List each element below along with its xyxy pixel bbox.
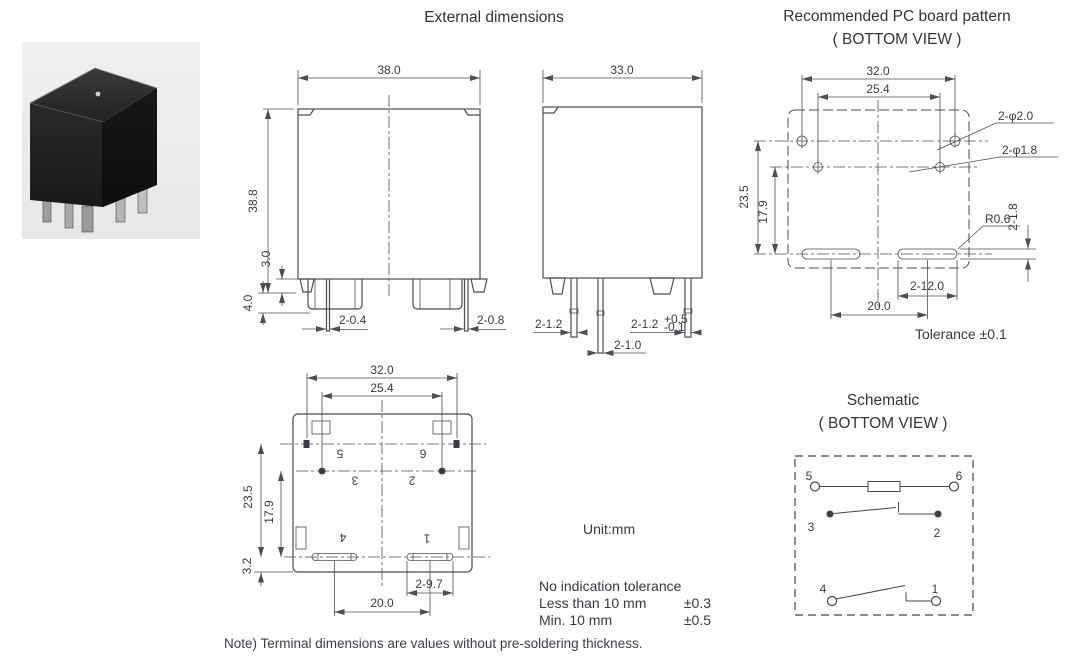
schematic-title-line2: ( BOTTOM VIEW ) xyxy=(743,412,1023,435)
side-label-pin-left: 2-1.2 xyxy=(535,317,563,331)
pcb-pattern-title: Recommended PC board pattern ( BOTTOM VI… xyxy=(755,5,1039,51)
bottom-pin5-label: 5 xyxy=(336,447,343,461)
side-label-pin-right: 2-1.2 xyxy=(631,317,659,331)
tolerance-note-title: No indication tolerance xyxy=(539,578,711,595)
bottom-dim-h-outer: 23.5 xyxy=(241,485,255,509)
front-view-drawing: 38.0 38.8 3.0 4.0 2-0.4 2-0.8 xyxy=(240,60,520,350)
relay-photo xyxy=(22,42,200,239)
pcb-pattern-title-line2: ( BOTTOM VIEW ) xyxy=(755,28,1039,51)
bottom-dim-h-inner: 17.9 xyxy=(262,500,276,524)
pcb-dim-h-inner: 17.9 xyxy=(756,200,770,224)
front-label-pin-wide: 2-0.8 xyxy=(477,313,505,327)
bottom-dim-pitch: 20.0 xyxy=(370,596,394,610)
tolerance-note-block: No indication tolerance Less than 10 mm … xyxy=(539,578,711,629)
bottom-pin1-label: 1 xyxy=(423,532,430,546)
datasheet-page: External dimensions Recommended PC board… xyxy=(0,0,1067,660)
pcb-pattern-drawing: 32.0 25.4 2-φ2.0 2-φ1.8 23.5 17.9 R0.6 2… xyxy=(740,60,1067,360)
schematic-pin4-label: 4 xyxy=(820,582,827,596)
schematic-contact-no xyxy=(828,586,941,606)
pcb-dim-w-inner: 25.4 xyxy=(866,82,890,96)
bottom-view-drawing: 5 6 3 2 4 1 32.0 25.4 23.5 17.9 3.2 2-9.… xyxy=(240,350,540,640)
schematic-pin3-label: 3 xyxy=(808,520,815,534)
bottom-pin2-label: 2 xyxy=(408,474,415,488)
pcb-dim-w-outer: 32.0 xyxy=(866,64,890,78)
footnote: Note) Terminal dimensions are values wit… xyxy=(224,636,642,651)
pcb-label-hole-large: 2-φ2.0 xyxy=(998,109,1033,123)
front-dim-standoff: 3.0 xyxy=(259,250,273,267)
front-terminals xyxy=(300,279,487,331)
bottom-pin3-label: 3 xyxy=(351,474,358,488)
tolerance-note-row1: Less than 10 mm ±0.3 xyxy=(539,595,711,612)
schematic-pin6-label: 6 xyxy=(956,469,963,483)
side-dim-width: 33.0 xyxy=(610,63,634,77)
schematic-coil xyxy=(811,482,959,492)
schematic-pin2-label: 2 xyxy=(934,526,941,540)
pcb-pattern-title-line1: Recommended PC board pattern xyxy=(755,5,1039,28)
front-dim-terminal: 4.0 xyxy=(241,294,255,311)
side-view-drawing: 33.0 2-1.2 2-1.2 +0.5 -0.1 2-1.0 xyxy=(530,60,720,370)
bottom-dim-w-inner: 25.4 xyxy=(370,381,394,395)
front-dim-width: 38.0 xyxy=(377,63,401,77)
tolerance-row1-value: ±0.3 xyxy=(684,595,711,612)
side-label-pin-right-sub: -0.1 xyxy=(664,320,685,334)
pcb-dim-pitch: 20.0 xyxy=(867,299,891,313)
tolerance-row1-label: Less than 10 mm xyxy=(539,595,646,612)
schematic-drawing: 5 6 3 2 4 1 xyxy=(790,440,990,630)
schematic-title: Schematic ( BOTTOM VIEW ) xyxy=(743,389,1023,435)
schematic-pin1-label: 1 xyxy=(932,582,939,596)
bottom-pin4-label: 4 xyxy=(339,531,346,545)
relay-body xyxy=(30,68,157,207)
bottom-dim-w-outer: 32.0 xyxy=(370,363,394,377)
tolerance-note-row2: Min. 10 mm ±0.5 xyxy=(539,612,711,629)
schematic-contact-nc xyxy=(827,502,942,518)
schematic-title-line1: Schematic xyxy=(743,389,1023,412)
pcb-tolerance: Tolerance ±0.1 xyxy=(915,326,1007,342)
front-dim-height: 38.8 xyxy=(246,189,260,213)
pcb-label-slot-width: 2-1.8 xyxy=(1006,203,1020,231)
tolerance-row2-value: ±0.5 xyxy=(684,612,711,629)
external-dimensions-title: External dimensions xyxy=(354,6,634,29)
pcb-dim-h-outer: 23.5 xyxy=(737,185,751,209)
bottom-dim-offset: 3.2 xyxy=(240,557,254,574)
unit-label: Unit:mm xyxy=(583,521,635,537)
tolerance-row2-label: Min. 10 mm xyxy=(539,612,612,629)
front-label-pin-thin: 2-0.4 xyxy=(339,313,367,327)
relay-cube-illustration xyxy=(22,42,200,239)
side-label-pin-center: 2-1.0 xyxy=(614,338,642,352)
schematic-pin5-label: 5 xyxy=(806,469,813,483)
bottom-dim-slot: 2-9.7 xyxy=(415,577,443,591)
pcb-label-hole-small: 2-φ1.8 xyxy=(1002,143,1037,157)
bottom-pin6-label: 6 xyxy=(419,447,426,461)
